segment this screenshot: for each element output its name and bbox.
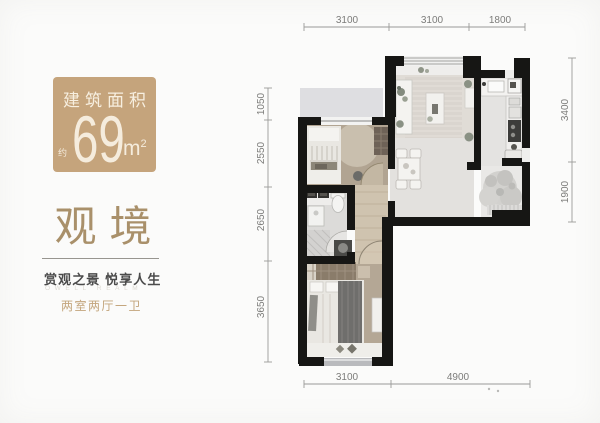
svg-text:3650: 3650 xyxy=(256,295,267,318)
svg-text:3100: 3100 xyxy=(421,15,444,26)
svg-text:3100: 3100 xyxy=(336,15,359,26)
svg-text:2550: 2550 xyxy=(256,141,267,164)
svg-text:3100: 3100 xyxy=(336,372,359,383)
svg-text:3400: 3400 xyxy=(560,98,571,121)
svg-text:1050: 1050 xyxy=(256,92,267,115)
svg-text:1900: 1900 xyxy=(560,180,571,203)
svg-text:2650: 2650 xyxy=(256,208,267,231)
svg-text:4900: 4900 xyxy=(447,372,470,383)
svg-text:1800: 1800 xyxy=(489,15,512,26)
